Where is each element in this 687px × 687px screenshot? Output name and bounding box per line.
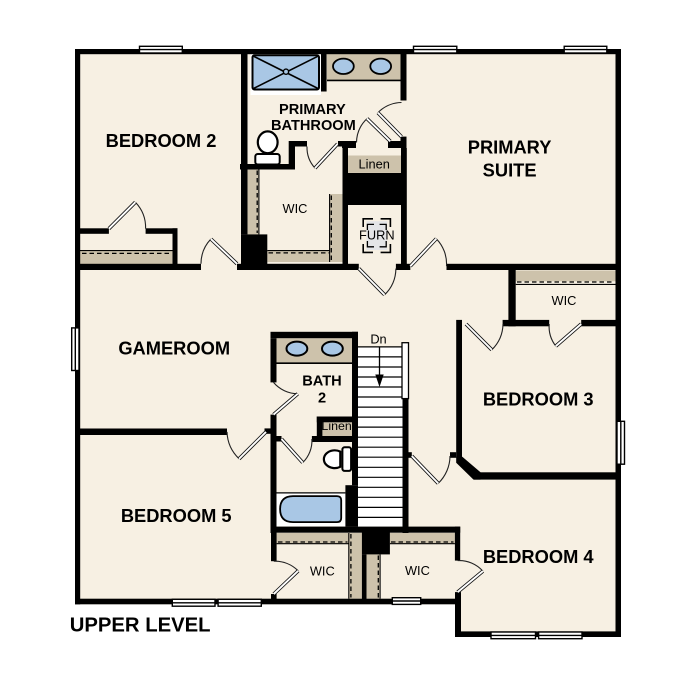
svg-text:BATH: BATH: [302, 373, 341, 389]
svg-text:GAMEROOM: GAMEROOM: [118, 337, 230, 358]
svg-text:WIC: WIC: [552, 293, 577, 308]
svg-text:UPPER LEVEL: UPPER LEVEL: [70, 615, 211, 637]
svg-text:2: 2: [318, 390, 326, 406]
svg-text:BEDROOM 3: BEDROOM 3: [483, 389, 594, 410]
svg-text:WIC: WIC: [405, 563, 430, 578]
svg-text:SUITE: SUITE: [483, 159, 537, 180]
svg-text:PRIMARY: PRIMARY: [279, 102, 346, 118]
svg-text:BEDROOM 4: BEDROOM 4: [483, 546, 595, 567]
svg-text:BATHROOM: BATHROOM: [271, 118, 356, 134]
svg-text:BEDROOM 2: BEDROOM 2: [106, 130, 217, 151]
svg-text:WIC: WIC: [283, 201, 308, 216]
svg-text:Dn: Dn: [370, 332, 386, 347]
svg-text:WIC: WIC: [310, 563, 335, 578]
svg-text:Linen: Linen: [321, 419, 351, 433]
svg-text:FURN: FURN: [359, 228, 395, 243]
svg-text:Linen: Linen: [359, 157, 390, 172]
svg-text:PRIMARY: PRIMARY: [468, 137, 552, 158]
svg-text:BEDROOM 5: BEDROOM 5: [121, 505, 232, 526]
